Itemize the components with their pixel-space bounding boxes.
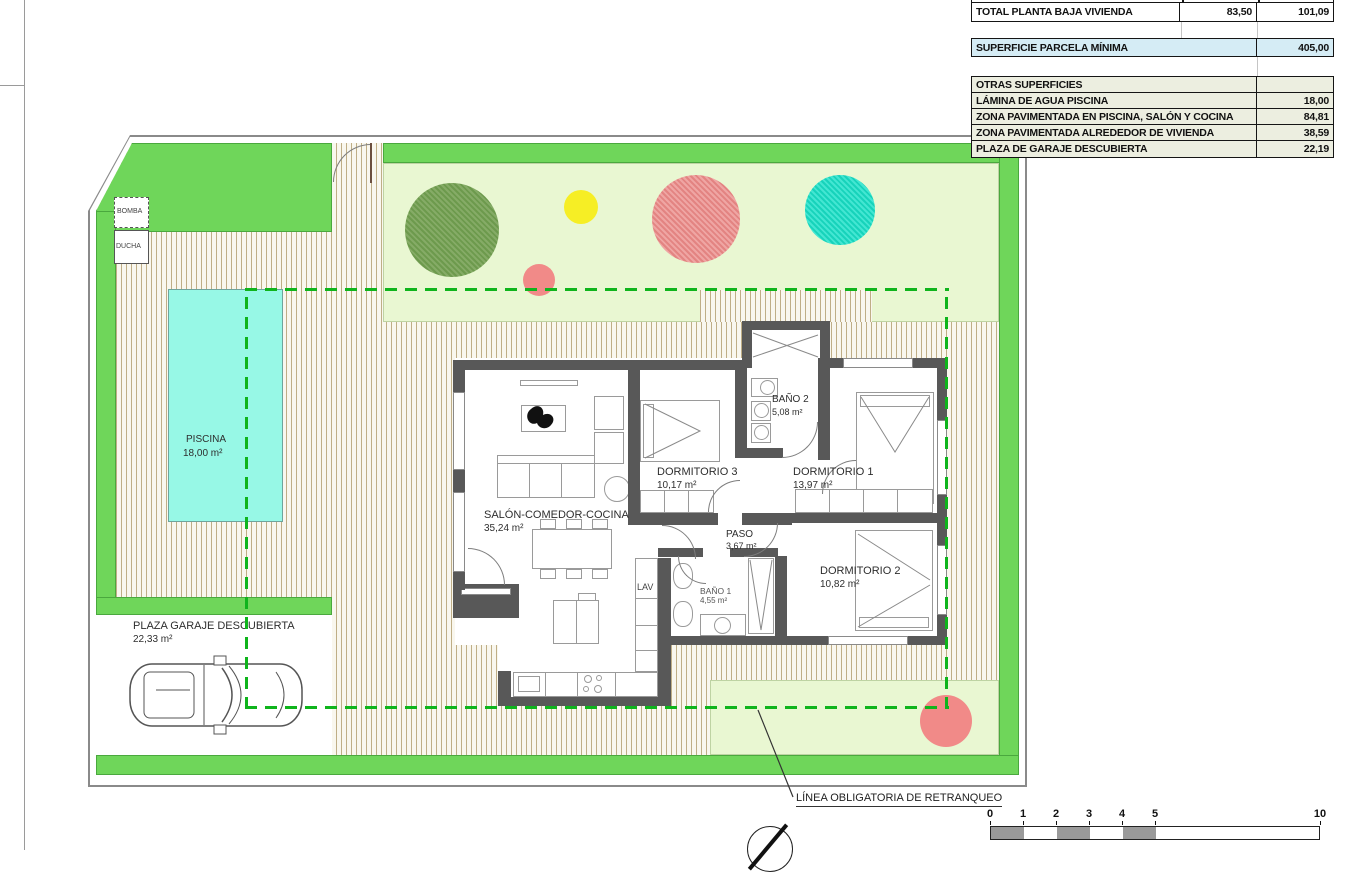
parcela-label: SUPERFICIE PARCELA MÍNIMA bbox=[972, 42, 1256, 54]
table-gap-line bbox=[1181, 22, 1182, 38]
table-row: PLAZA DE GARAJE DESCUBIERTA 22,19 bbox=[971, 140, 1334, 158]
scale-tick-label: 2 bbox=[1053, 808, 1059, 820]
table-row: ZONA PAVIMENTADA ALREDEDOR DE VIVIENDA 3… bbox=[971, 124, 1334, 141]
total-built: 101,09 bbox=[1256, 3, 1333, 21]
scale-tick-label: 5 bbox=[1152, 808, 1158, 820]
table-row: ZONA PAVIMENTADA EN PISCINA, SALÓN Y COC… bbox=[971, 108, 1334, 125]
table-row-otras-header: OTRAS SUPERFICIES bbox=[971, 76, 1334, 93]
table-row-parcela: SUPERFICIE PARCELA MÍNIMA 405,00 bbox=[971, 38, 1334, 57]
retranqueo-line-right bbox=[945, 288, 948, 709]
retranqueo-line-left bbox=[245, 288, 248, 709]
page-border-left bbox=[24, 0, 25, 850]
scale-bar: 0 1 2 3 4 5 10 bbox=[988, 808, 1324, 844]
scale-tick-label: 10 bbox=[1314, 808, 1326, 820]
table-gap-line bbox=[1257, 57, 1258, 76]
retranqueo-line-top bbox=[245, 288, 949, 291]
retranqueo-line-bottom bbox=[245, 706, 949, 709]
retranqueo-caption: LÍNEA OBLIGATORIA DE RETRANQUEO bbox=[796, 792, 1002, 807]
scale-tick-label: 4 bbox=[1119, 808, 1125, 820]
plan-sheet: { "table": { "total_row": {"label": "TOT… bbox=[0, 0, 1360, 850]
scale-tick-label: 1 bbox=[1020, 808, 1026, 820]
table-row: LÁMINA DE AGUA PISCINA 18,00 bbox=[971, 92, 1334, 109]
plot-content: PLAZA GARAJE DESCUBIERTA 22,33 m² PISCIN… bbox=[96, 143, 1019, 775]
otras-header: OTRAS SUPERFICIES bbox=[972, 79, 1256, 91]
total-label: TOTAL PLANTA BAJA VIVIENDA bbox=[972, 6, 1179, 18]
plant-icon bbox=[527, 406, 553, 428]
parcela-value: 405,00 bbox=[1256, 39, 1333, 56]
scale-tick-label: 3 bbox=[1086, 808, 1092, 820]
scale-tick-label: 0 bbox=[987, 808, 993, 820]
total-util: 83,50 bbox=[1179, 3, 1256, 21]
page-border-tick bbox=[0, 85, 24, 86]
scale-bar-track bbox=[990, 826, 1320, 840]
table-row-total: TOTAL PLANTA BAJA VIVIENDA 83,50 101,09 bbox=[971, 2, 1334, 22]
table-gap-line bbox=[1257, 22, 1258, 38]
